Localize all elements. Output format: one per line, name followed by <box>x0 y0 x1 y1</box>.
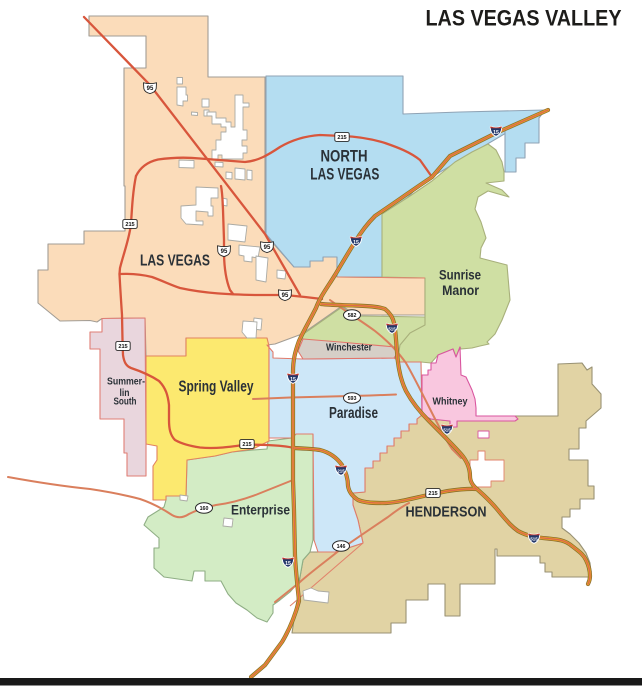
svg-text:95: 95 <box>264 245 271 251</box>
svg-text:15: 15 <box>290 377 296 383</box>
svg-text:Sunrise: Sunrise <box>439 267 481 283</box>
svg-text:South: South <box>114 396 137 408</box>
svg-text:HENDERSON: HENDERSON <box>406 505 487 521</box>
svg-text:593: 593 <box>348 396 357 402</box>
svg-text:Paradise: Paradise <box>329 405 378 422</box>
svg-text:NORTH: NORTH <box>321 148 368 166</box>
svg-text:215: 215 <box>118 344 127 350</box>
svg-text:LAS VEGAS VALLEY: LAS VEGAS VALLEY <box>426 6 622 31</box>
svg-text:215: 215 <box>428 491 437 497</box>
svg-text:95: 95 <box>282 293 289 299</box>
svg-text:515: 515 <box>443 428 451 433</box>
svg-text:215: 215 <box>337 135 346 141</box>
svg-text:LAS VEGAS: LAS VEGAS <box>310 166 379 184</box>
svg-text:LAS VEGAS: LAS VEGAS <box>140 253 210 270</box>
svg-text:515: 515 <box>388 327 396 332</box>
svg-text:Spring Valley: Spring Valley <box>179 379 254 396</box>
svg-text:Whitney: Whitney <box>433 397 468 408</box>
svg-text:15: 15 <box>285 561 291 567</box>
svg-text:Winchester: Winchester <box>326 342 372 354</box>
svg-text:95: 95 <box>221 249 228 255</box>
svg-text:15: 15 <box>353 240 359 246</box>
svg-text:160: 160 <box>200 506 209 512</box>
svg-text:Enterprise: Enterprise <box>231 502 290 518</box>
svg-text:95: 95 <box>147 86 154 92</box>
svg-text:Manor: Manor <box>442 282 479 298</box>
svg-text:15: 15 <box>493 130 499 136</box>
svg-text:215: 215 <box>337 469 345 474</box>
svg-text:215: 215 <box>125 222 134 228</box>
svg-text:582: 582 <box>348 313 357 319</box>
svg-text:146: 146 <box>337 544 346 550</box>
svg-text:515: 515 <box>530 537 538 542</box>
svg-text:215: 215 <box>242 442 251 448</box>
svg-text:Summer-: Summer- <box>107 376 145 388</box>
